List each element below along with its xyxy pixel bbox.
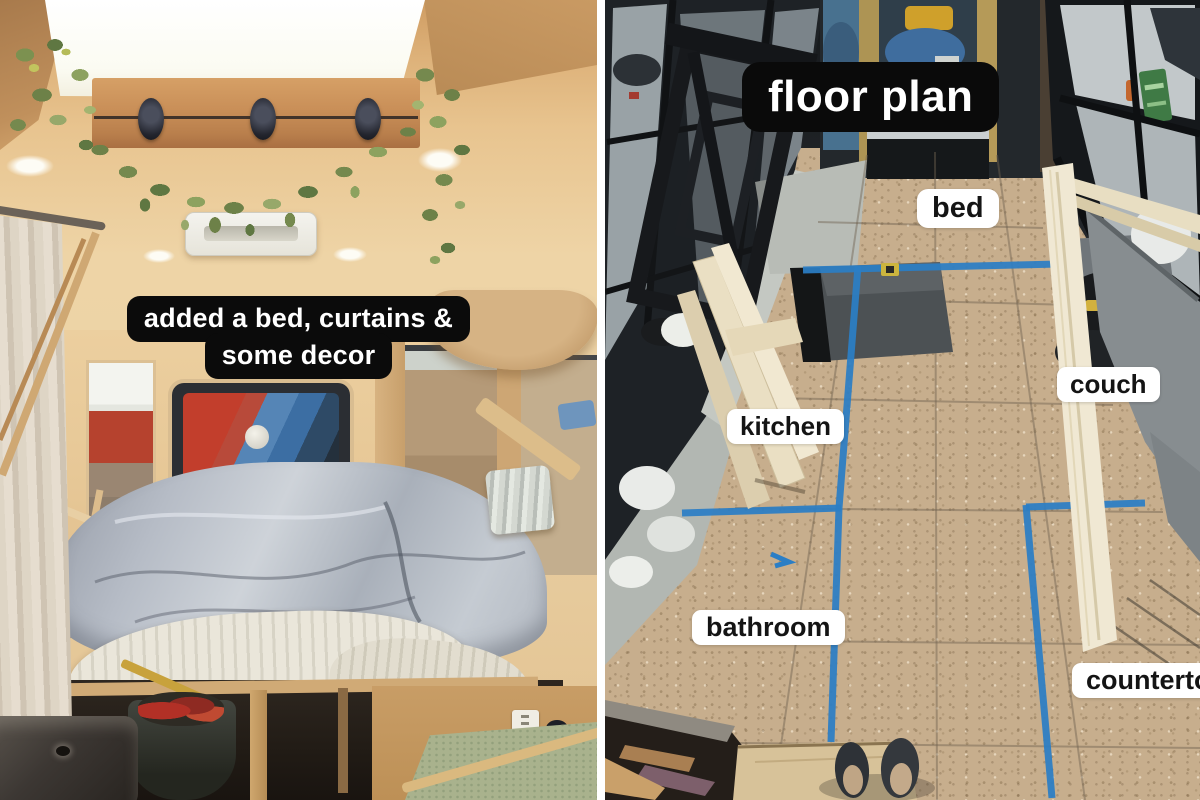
caption-line-2: some decor	[205, 333, 393, 379]
round-object	[245, 425, 269, 449]
label-bathroom: bathroom	[692, 610, 845, 645]
tool-bucket	[128, 700, 236, 800]
floor-plan-title: floor plan	[742, 62, 999, 132]
right-photo-floor-plan: floor plan bed couch kitchen bathroom co…	[605, 0, 1200, 800]
foil-basket	[485, 465, 555, 535]
bed-frame-post	[338, 688, 348, 793]
caption-bubble: added a bed, curtains & some decor	[0, 296, 597, 379]
photo-collage: added a bed, curtains & some decor	[0, 0, 1200, 800]
label-bed: bed	[917, 189, 999, 228]
label-couch: couch	[1057, 367, 1160, 402]
label-countertop: countertop	[1072, 663, 1200, 698]
left-photo-bus-bedroom: added a bed, curtains & some decor	[0, 0, 597, 800]
red-tools	[138, 692, 224, 726]
bed-frame-post	[250, 690, 267, 800]
ottoman	[0, 716, 138, 800]
label-kitchen: kitchen	[727, 409, 844, 444]
